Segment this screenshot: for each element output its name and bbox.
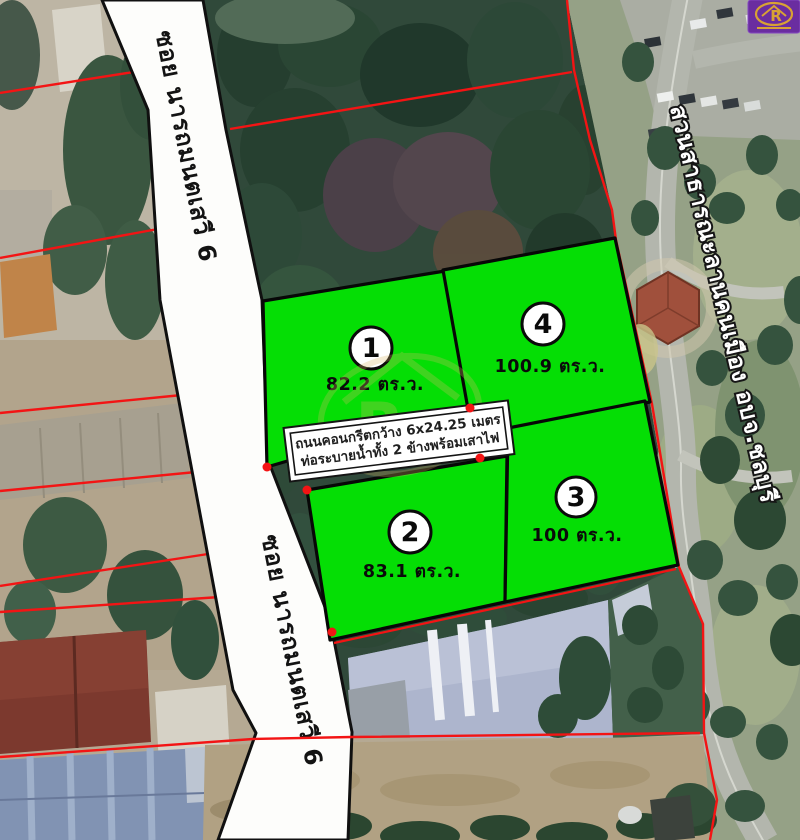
plot-3-number: 3	[567, 482, 586, 513]
logo-letter: R	[770, 7, 782, 25]
plot-2-area: 83.1 ตร.ว.	[363, 562, 461, 582]
land-plot-map: ซอย นารถมนตเสวี 6 ซอย นารถมนตเสวี 6 1 82…	[0, 0, 800, 840]
brand-logo: R	[748, 0, 800, 33]
map-svg: ซอย นารถมนตเสวี 6 ซอย นารถมนตเสวี 6 1 82…	[0, 0, 800, 840]
plot-3-area: 100 ตร.ว.	[531, 526, 622, 546]
plot-4-number: 4	[534, 309, 553, 340]
orange-roof-building	[0, 254, 57, 338]
plot-2-number: 2	[401, 517, 420, 548]
plot-4-area: 100.9 ตร.ว.	[495, 357, 606, 377]
logo-tagline-mark	[757, 27, 791, 29]
